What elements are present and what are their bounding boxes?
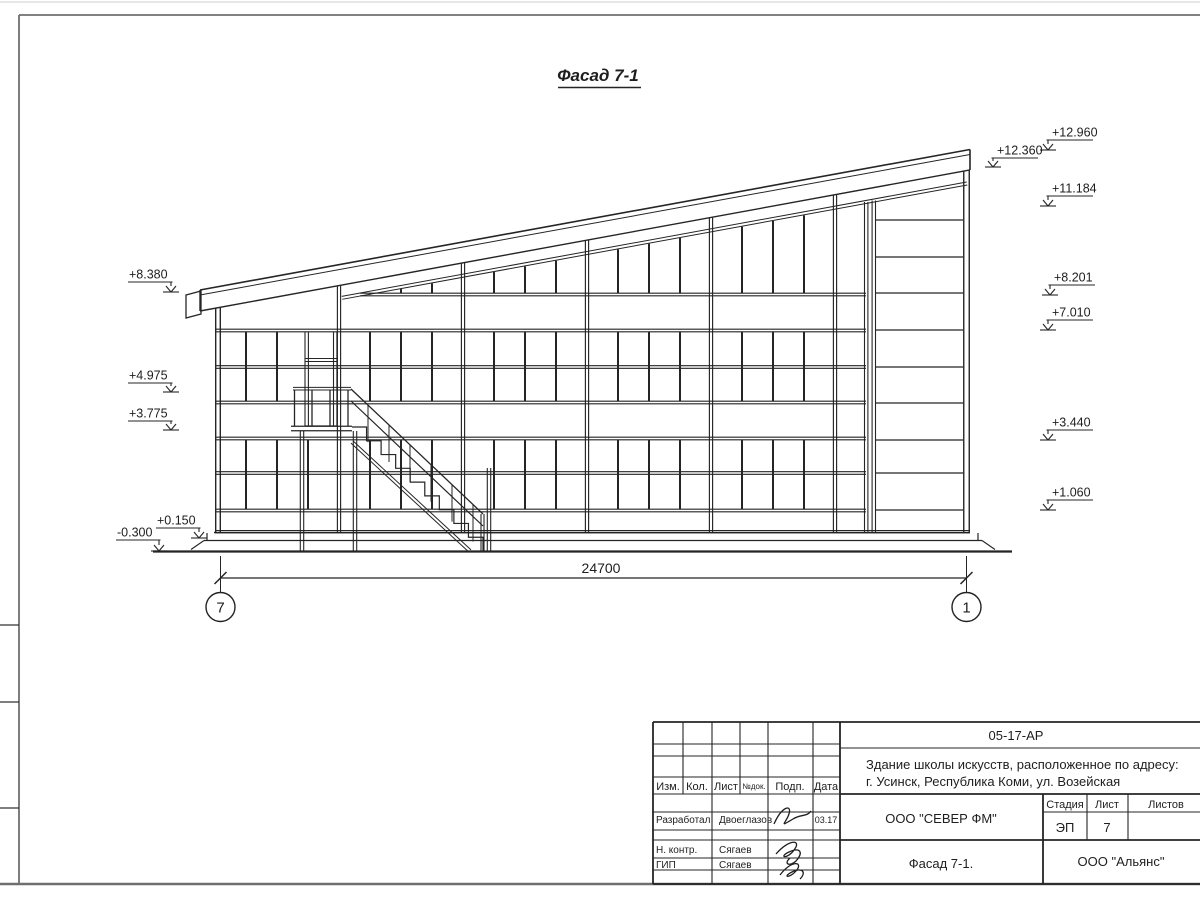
col-ndoc: №док. xyxy=(742,782,765,791)
mark-arrowhead xyxy=(154,545,159,551)
title-block-project-line2: г. Усинск, Республика Коми, ул. Возейска… xyxy=(866,774,1120,789)
elevation-mark-label: +11.184 xyxy=(1052,182,1097,196)
mark-arrowhead xyxy=(1043,504,1048,510)
mark-arrowhead xyxy=(1043,200,1048,206)
elevation-mark: +12.960 xyxy=(1040,126,1098,151)
elevation-mark: -0.300 xyxy=(116,526,167,552)
elevation-mark: +3.440 xyxy=(1040,416,1093,441)
mark-arrowhead xyxy=(171,386,176,392)
sheet-label: Лист xyxy=(1095,799,1119,811)
title-block-project-line1: Здание школы искусств, расположенное по … xyxy=(866,757,1179,772)
row-name-1: Сягаев xyxy=(719,845,752,856)
title-block-org2: ООО "Альянс" xyxy=(1078,854,1165,869)
elevation-mark: +0.150 xyxy=(156,514,207,539)
title-block-code: 05-17-АР xyxy=(989,728,1044,743)
elevation-mark-label: +1.060 xyxy=(1052,486,1091,500)
row-role-2: ГИП xyxy=(656,860,676,871)
mark-arrowhead xyxy=(1043,144,1048,150)
col-podp: Подп. xyxy=(775,781,804,793)
title-block: 05-17-АР Здание школы искусств, располож… xyxy=(653,722,1200,884)
roof-overhang-cap xyxy=(186,291,201,318)
dimension-group: 24700 7 1 xyxy=(206,556,981,622)
mark-arrowhead xyxy=(1048,144,1053,150)
row-role-1: Н. контр. xyxy=(656,845,697,856)
elevation-mark: +11.184 xyxy=(1040,182,1097,207)
mark-arrowhead xyxy=(159,545,164,551)
mark-arrowhead xyxy=(1048,434,1053,440)
title-block-org: ООО "СЕВЕР ФМ" xyxy=(885,811,997,826)
mark-arrowhead xyxy=(171,286,176,292)
mark-arrowhead xyxy=(1043,324,1048,330)
col-izm: Изм. xyxy=(656,781,680,793)
col-data: Дата xyxy=(814,781,839,793)
elevation-mark-label: +12.960 xyxy=(1052,126,1098,140)
elevation-mark-label: +7.010 xyxy=(1052,306,1091,320)
elevation-mark-label: +3.775 xyxy=(129,407,168,421)
axis-label-right: 1 xyxy=(962,600,970,617)
mark-arrowhead xyxy=(199,532,204,538)
mark-arrowhead xyxy=(166,286,171,292)
facade-drawing xyxy=(153,150,1012,552)
elevation-mark-label: +12.360 xyxy=(997,144,1043,158)
stage-label: Стадия xyxy=(1046,799,1084,811)
mark-arrowhead xyxy=(166,386,171,392)
drawing-title: Фасад 7-1 xyxy=(557,66,638,85)
elevation-mark: +3.775 xyxy=(128,407,179,431)
elevation-mark: +8.380 xyxy=(128,268,179,293)
elevation-mark-label: +3.440 xyxy=(1052,416,1091,430)
drawing-sheet: Фасад 7-1 +8.380+4.975+3.775+0.150-0.300… xyxy=(0,0,1200,900)
dimension-value: 24700 xyxy=(582,560,621,576)
mark-arrowhead xyxy=(1043,434,1048,440)
elevation-mark-label: +8.380 xyxy=(129,268,168,282)
fire-escape-stair xyxy=(291,387,491,552)
row-name-0: Двоеглазов xyxy=(719,815,772,826)
mark-arrowhead xyxy=(988,161,993,167)
row-date-0: 03.17 xyxy=(815,815,838,825)
elevation-mark: +4.975 xyxy=(128,369,179,393)
mark-arrowhead xyxy=(171,424,176,430)
elevation-mark: +1.060 xyxy=(1040,486,1093,511)
mark-arrowhead xyxy=(194,532,199,538)
mark-arrowhead xyxy=(1048,504,1053,510)
elevation-mark-label: -0.300 xyxy=(117,526,152,540)
plinth-apron xyxy=(191,541,204,550)
col-list: Лист xyxy=(714,781,738,793)
row-role-0: Разработал xyxy=(656,814,711,826)
mark-arrowhead xyxy=(1045,289,1050,295)
mark-arrowhead xyxy=(1050,289,1055,295)
signature-gip xyxy=(780,864,803,879)
elevation-mark-label: +0.150 xyxy=(157,514,196,528)
elevation-mark: +12.360 xyxy=(985,144,1043,168)
doc-title: Фасад 7-1. xyxy=(909,856,973,871)
elevation-mark-label: +8.201 xyxy=(1054,271,1093,285)
mark-arrowhead xyxy=(1048,324,1053,330)
signature-razrabotal xyxy=(774,808,811,824)
sheets-label: Листов xyxy=(1148,799,1184,811)
sheet-value: 7 xyxy=(1103,820,1110,835)
mark-arrowhead xyxy=(166,424,171,430)
stage-value: ЭП xyxy=(1056,820,1075,835)
mark-arrowhead xyxy=(1048,200,1053,206)
row-name-2: Сягаев xyxy=(719,860,752,871)
signature-nkontr xyxy=(776,842,800,864)
mark-arrowhead xyxy=(993,161,998,167)
plinth-apron xyxy=(982,541,995,550)
sheet-frame xyxy=(0,2,1200,884)
elevation-marks: +8.380+4.975+3.775+0.150-0.300+12.960+12… xyxy=(116,88,1098,552)
elevation-mark: +7.010 xyxy=(1040,306,1093,331)
roof-soffit xyxy=(342,182,967,296)
col-kol: Кол. xyxy=(686,781,708,793)
elevation-mark: +8.201 xyxy=(1042,271,1095,296)
roof-soffit xyxy=(342,185,967,299)
axis-label-left: 7 xyxy=(216,600,224,617)
elevation-mark-label: +4.975 xyxy=(129,369,168,383)
